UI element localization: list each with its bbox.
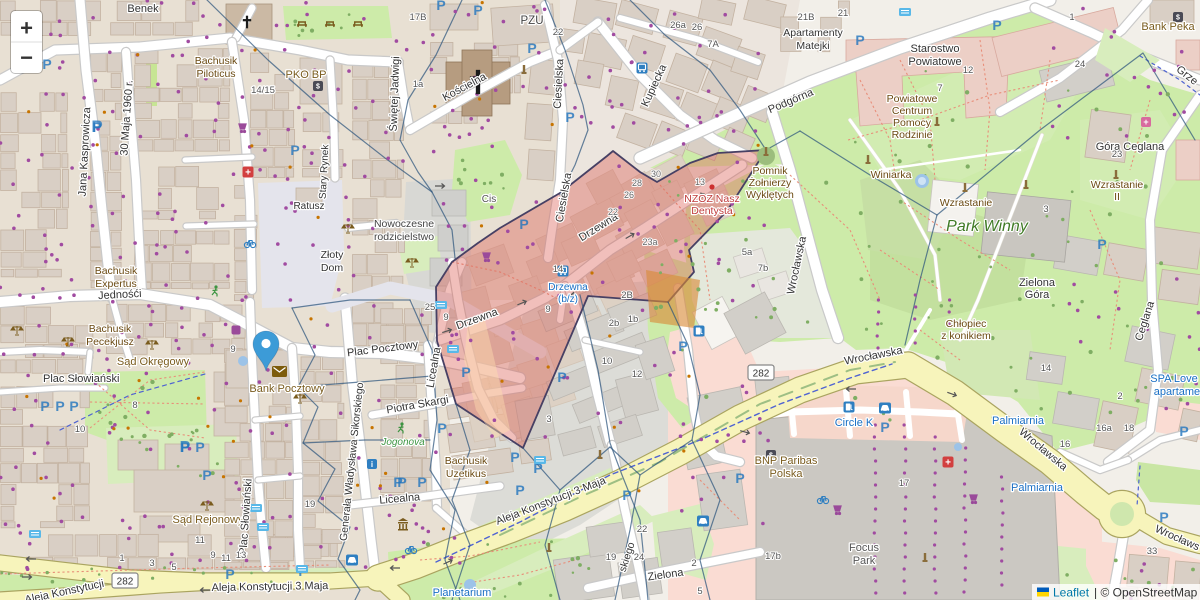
svg-text:11: 11 [195,535,205,546]
svg-text:BNP Paribas: BNP Paribas [755,455,818,467]
svg-text:Park Winny: Park Winny [946,218,1029,235]
svg-text:Świętej Jadwigi: Świętej Jadwigi [387,56,403,132]
svg-text:P: P [55,398,64,414]
svg-text:P: P [992,17,1001,33]
svg-text:2: 2 [691,558,696,569]
svg-text:Wyklętych: Wyklętych [746,189,794,201]
svg-text:i: i [371,460,373,469]
svg-text:Winiarka: Winiarka [871,169,912,181]
svg-text:P: P [855,32,864,48]
svg-text:24: 24 [1075,59,1086,70]
svg-text:+: + [1143,117,1148,127]
svg-text:1: 1 [119,553,124,564]
svg-text:Zielona: Zielona [1019,277,1056,289]
svg-text:23a: 23a [642,237,657,247]
svg-text:+: + [20,16,33,41]
svg-text:Centrum: Centrum [892,105,933,117]
svg-text:14/15: 14/15 [251,85,275,96]
svg-text:P: P [565,109,574,125]
svg-text:282: 282 [753,369,770,380]
svg-text:Palmiarnia: Palmiarnia [1011,482,1064,494]
svg-text:22: 22 [637,524,648,535]
svg-text:Wzrastanie: Wzrastanie [1091,179,1144,191]
svg-text:9: 9 [230,344,235,355]
svg-text:P: P [437,420,446,436]
svg-text:Powiatowe: Powiatowe [908,56,961,68]
svg-text:P: P [195,439,204,455]
svg-text:22: 22 [553,27,564,38]
svg-text:5: 5 [171,562,176,573]
svg-text:9: 9 [545,304,550,315]
svg-text:14: 14 [553,264,564,275]
svg-text:Starostwo: Starostwo [911,43,960,55]
svg-text:−: − [20,45,33,70]
svg-text:Góra: Góra [1025,289,1050,301]
svg-text:P: P [225,566,234,582]
svg-text:Uzetikus: Uzetikus [446,468,486,480]
svg-text:21: 21 [838,8,849,19]
svg-text:apartamen: apartamen [1154,386,1200,398]
svg-text:P: P [515,482,524,498]
svg-text:5: 5 [697,586,702,597]
svg-text:Focus: Focus [849,542,879,554]
svg-text:| © OpenStreetMap: | © OpenStreetMap [1094,586,1198,600]
svg-text:Sąd Okręgowy: Sąd Okręgowy [117,356,190,368]
svg-text:Ratusz: Ratusz [293,201,324,212]
svg-text:P: P [1179,423,1188,439]
svg-text:SPA Love: SPA Love [1150,373,1198,385]
svg-text:1b: 1b [628,314,639,325]
svg-text:P: P [678,338,687,354]
svg-text:P: P [202,467,211,483]
svg-text:Leaflet: Leaflet [1053,586,1090,600]
svg-text:33: 33 [1147,546,1158,557]
svg-text:3: 3 [546,414,551,425]
svg-text:Aleja Konstytucji 3 Maja: Aleja Konstytucji 3 Maja [211,580,329,594]
svg-text:23: 23 [1112,149,1123,160]
svg-text:Circle K: Circle K [835,417,874,429]
svg-text:P: P [417,474,426,490]
svg-text:P: P [180,439,191,456]
svg-text:Bachusik: Bachusik [95,265,138,277]
svg-text:9: 9 [443,312,448,323]
svg-text:P: P [527,40,536,56]
svg-text:Dentysta: Dentysta [691,205,733,217]
svg-text:16a: 16a [1096,423,1113,434]
svg-text:17B: 17B [410,12,427,23]
svg-text:7A: 7A [707,39,719,50]
svg-text:11: 11 [221,553,231,564]
svg-text:Wzrastanie: Wzrastanie [940,197,993,209]
svg-text:30: 30 [651,169,661,179]
svg-text:2B: 2B [621,290,633,301]
svg-text:3: 3 [149,558,154,569]
svg-text:Jogonova: Jogonova [380,437,425,448]
svg-text:Palmiarnia: Palmiarnia [992,415,1045,427]
svg-text:Planetarium: Planetarium [433,587,492,599]
svg-text:Żołnierzy: Żołnierzy [749,176,792,189]
svg-text:17b: 17b [765,551,781,562]
svg-text:13: 13 [695,177,705,187]
svg-text:21B: 21B [798,12,815,23]
svg-text:Sąd Rejonowy: Sąd Rejonowy [173,514,244,526]
svg-text:Cis: Cis [482,194,496,205]
svg-text:2: 2 [1117,391,1122,402]
svg-text:Matejki: Matejki [796,40,829,52]
svg-text:26a: 26a [670,20,687,31]
svg-text:PKO BP: PKO BP [286,69,327,81]
svg-text:PZU: PZU [521,15,544,27]
svg-text:Bank Peka: Bank Peka [1141,21,1195,33]
svg-text:P: P [557,369,566,385]
svg-text:$: $ [316,84,320,91]
svg-text:P: P [461,364,470,380]
svg-text:1a: 1a [413,79,424,90]
svg-text:P: P [622,487,631,503]
svg-text:3: 3 [1043,204,1048,215]
svg-text:Złoty: Złoty [321,249,345,261]
svg-text:P: P [42,56,51,72]
svg-text:12: 12 [632,369,643,380]
svg-text:17: 17 [899,478,910,489]
svg-text:P: P [69,398,78,414]
svg-text:1: 1 [1069,12,1074,23]
svg-text:P: P [473,2,482,18]
svg-text:Bachusik: Bachusik [195,55,238,67]
svg-text:16: 16 [1060,439,1071,450]
svg-text:Dom: Dom [321,262,343,274]
svg-text:9: 9 [210,550,215,561]
svg-text:22: 22 [608,207,618,217]
svg-text:Pomocy: Pomocy [893,117,932,129]
svg-text:Benek: Benek [127,3,159,15]
svg-text:26: 26 [692,22,703,33]
svg-text:19: 19 [606,552,617,563]
svg-text:26: 26 [624,190,634,200]
svg-text:Jednośći: Jednośći [98,288,142,302]
svg-text:Rodzinie: Rodzinie [892,129,933,141]
svg-text:P: P [436,0,445,13]
svg-text:P: P [519,216,528,232]
svg-text:18: 18 [1124,423,1135,434]
svg-text:Piloticus: Piloticus [196,68,235,80]
svg-text:P: P [1159,509,1168,525]
svg-text:5a: 5a [742,247,753,258]
svg-text:+: + [945,458,951,469]
svg-text:P: P [735,470,744,486]
svg-text:P: P [1097,236,1106,252]
svg-text:25: 25 [425,302,436,313]
svg-text:Bank Pocztowy: Bank Pocztowy [249,383,325,395]
svg-text:Powiatowe: Powiatowe [887,93,938,105]
svg-text:Pomnik: Pomnik [752,165,788,177]
svg-text:+: + [245,168,251,179]
svg-text:Plac Słowiański: Plac Słowiański [43,373,119,385]
svg-text:7: 7 [937,83,942,94]
svg-text:P: P [510,449,519,465]
svg-text:NZOZ Nasz: NZOZ Nasz [684,193,739,205]
svg-text:Apartamenty: Apartamenty [783,27,843,39]
svg-text:II: II [1114,191,1120,203]
svg-text:z konikiem: z konikiem [941,330,991,342]
svg-text:12: 12 [963,65,974,76]
svg-text:14: 14 [1041,363,1052,374]
svg-text:282: 282 [117,577,134,588]
svg-text:24: 24 [634,552,645,563]
svg-text:Góra Ceglana: Góra Ceglana [1096,141,1165,153]
svg-text:28: 28 [632,178,642,188]
svg-text:P: P [91,117,102,136]
svg-text:P: P [290,142,299,158]
svg-text:7b: 7b [758,263,769,274]
svg-text:8: 8 [132,400,137,411]
svg-text:Park: Park [853,555,876,567]
svg-text:Polska: Polska [769,468,803,480]
svg-text:P: P [40,398,49,414]
svg-text:Pecekjusz: Pecekjusz [86,336,134,348]
svg-text:P: P [880,419,889,435]
svg-text:10: 10 [602,356,613,367]
svg-text:P: P [397,474,406,490]
svg-text:(b/z): (b/z) [558,294,578,305]
svg-text:19: 19 [305,499,316,510]
svg-text:13: 13 [236,550,247,561]
svg-text:Drzewna: Drzewna [548,282,588,293]
svg-text:2b: 2b [609,318,620,329]
svg-text:10: 10 [75,424,86,435]
svg-text:Bachusik: Bachusik [445,455,488,467]
svg-text:Chłopiec: Chłopiec [946,318,987,330]
svg-text:Bachusik: Bachusik [89,323,132,335]
svg-text:rodzicielstwo: rodzicielstwo [374,231,434,243]
svg-text:Nowoczesne: Nowoczesne [374,218,434,230]
